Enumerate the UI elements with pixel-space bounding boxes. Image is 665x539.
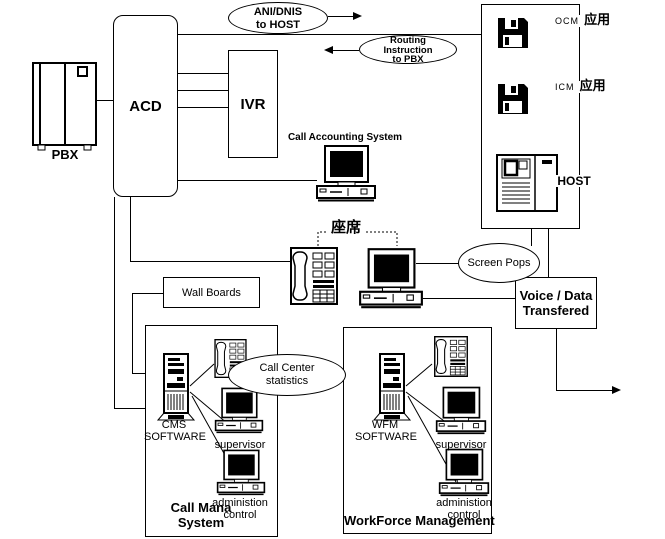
- wfm-tower-server-icon: [372, 353, 412, 423]
- cms-admin-computer-icon: [216, 448, 266, 498]
- wall-boards-label: Wall Boards: [182, 287, 241, 299]
- acd-label: ACD: [129, 98, 162, 115]
- connector-line: [178, 180, 317, 181]
- wfm-supervisor-label: supervisor: [431, 439, 491, 451]
- connector-line: [114, 408, 145, 409]
- connector-line: [178, 107, 228, 108]
- connector-line: [178, 90, 228, 91]
- connector-line: [531, 229, 532, 246]
- connector-line: [132, 293, 133, 373]
- connector-line: [178, 34, 481, 35]
- call-center-architecture-diagram: ACD IVR Wall Boards Voice / Data Transfe…: [0, 0, 665, 539]
- wfm-software-label: WFM SOFTWARE: [355, 419, 415, 443]
- connector-line: [556, 390, 613, 391]
- call-center-statistics-ellipse: Call Center statistics: [228, 354, 346, 396]
- icm-app-label: ICM 应用: [554, 81, 594, 93]
- connector-line: [333, 50, 359, 51]
- connector-line: [423, 298, 515, 299]
- ocm-app-label: OCM 应用: [554, 15, 594, 27]
- wfm-admin-computer-icon: [438, 448, 490, 498]
- agent-phone-icon: [290, 247, 338, 305]
- arrow-right-icon: [353, 12, 362, 20]
- host-server-icon: [496, 154, 558, 212]
- pbx-label: PBX: [45, 149, 85, 161]
- routing-instruction-ellipse: Routing Instruction to PBX: [359, 35, 457, 64]
- connector-line: [328, 16, 354, 17]
- connector-line: [132, 293, 163, 294]
- cms-tower-server-icon: [156, 353, 196, 423]
- connector-line: [97, 100, 113, 101]
- call-accounting-computer-icon: [315, 145, 377, 203]
- wfm-phone-icon: [431, 336, 471, 377]
- connector-line: [548, 229, 549, 277]
- ani-dnis-to-host-ellipse: ANI/DNIS to HOST: [228, 2, 328, 34]
- floppy-disk-icon: [496, 82, 530, 116]
- pbx-cabinet-icon: [32, 62, 97, 152]
- wfm-box-title: WorkForce Management: [344, 515, 494, 527]
- host-label: HOST: [552, 175, 596, 187]
- voice-data-label: Voice / Data Transfered: [520, 288, 593, 318]
- connector-line: [130, 261, 290, 262]
- screen-pops-ellipse: Screen Pops: [458, 243, 540, 283]
- cms-box-title: Call Mana System: [151, 500, 251, 530]
- agent-workstation-icon: [358, 245, 424, 313]
- arrow-right-icon: [612, 386, 621, 394]
- wfm-supervisor-computer-icon: [435, 386, 487, 436]
- acd-node: ACD: [113, 15, 178, 197]
- connector-line: [556, 329, 557, 390]
- connector-line: [130, 197, 131, 261]
- connector-line: [178, 73, 228, 74]
- ivr-node: IVR: [228, 50, 278, 158]
- cms-supervisor-label: supervisor: [210, 439, 270, 451]
- cms-supervisor-computer-icon: [214, 386, 264, 436]
- arrow-left-icon: [324, 46, 333, 54]
- voice-data-transferred-node: Voice / Data Transfered: [515, 277, 597, 329]
- connector-line: [132, 373, 145, 374]
- wall-boards-node: Wall Boards: [163, 277, 260, 308]
- ivr-label: IVR: [240, 96, 265, 113]
- agent-seat-label: 座席: [326, 221, 366, 233]
- cms-software-label: CMS SOFTWARE: [144, 419, 204, 443]
- connector-line: [114, 197, 115, 408]
- floppy-disk-icon: [496, 16, 530, 50]
- call-accounting-system-label: Call Accounting System: [285, 132, 405, 144]
